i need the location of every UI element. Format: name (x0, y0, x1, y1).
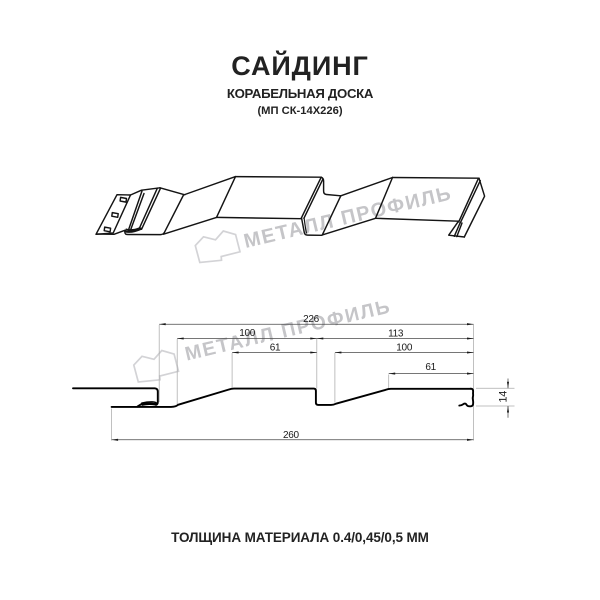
svg-text:113: 113 (388, 328, 404, 339)
svg-text:226: 226 (303, 314, 320, 325)
svg-text:260: 260 (283, 430, 300, 441)
svg-text:61: 61 (425, 362, 436, 373)
svg-text:100: 100 (396, 342, 413, 353)
svg-text:МЕТАЛЛ ПРОФИЛЬ: МЕТАЛЛ ПРОФИЛЬ (183, 295, 394, 365)
svg-text:100: 100 (239, 328, 256, 339)
svg-text:61: 61 (270, 342, 281, 353)
svg-text:14: 14 (497, 391, 509, 403)
